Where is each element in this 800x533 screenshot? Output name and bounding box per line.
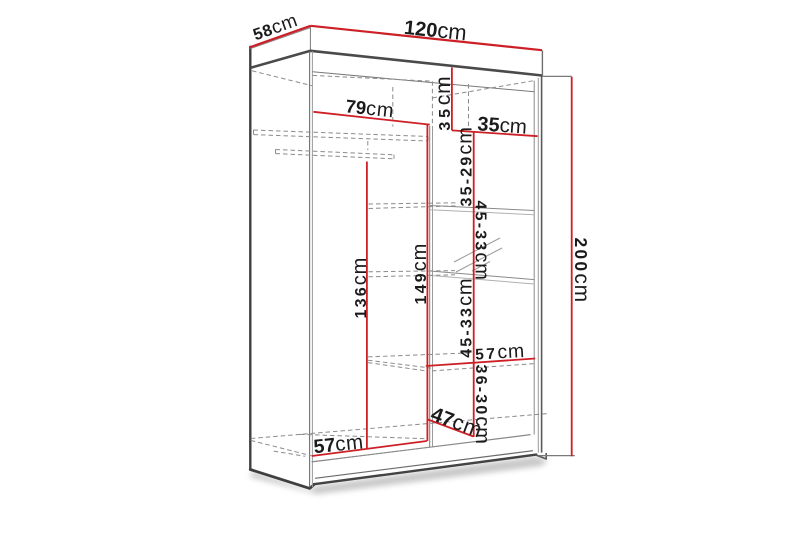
svg-text:35-29cm: 35-29cm	[454, 126, 476, 206]
svg-text:45-33cm: 45-33cm	[471, 201, 493, 281]
svg-text:136cm: 136cm	[349, 257, 371, 319]
svg-text:200cm: 200cm	[570, 238, 593, 303]
svg-text:45-33cm: 45-33cm	[455, 278, 477, 358]
svg-text:149cm: 149cm	[409, 243, 431, 305]
svg-text:35cm: 35cm	[477, 112, 528, 138]
